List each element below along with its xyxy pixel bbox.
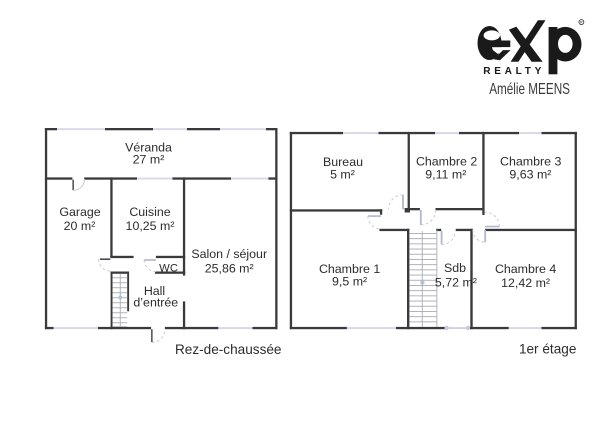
svg-text:WC: WC [159, 262, 178, 274]
svg-text:9,11 m²: 9,11 m² [425, 168, 466, 182]
svg-text:Garage: Garage [59, 205, 100, 219]
svg-text:Salon / séjour: Salon / séjour [191, 247, 267, 261]
svg-text:Sdb: Sdb [444, 261, 466, 275]
svg-text:Cuisine: Cuisine [129, 205, 170, 219]
svg-text:d’entrée: d’entrée [133, 296, 178, 310]
svg-text:5 m²: 5 m² [330, 167, 355, 181]
svg-text:10,25 m²: 10,25 m² [126, 219, 175, 233]
svg-text:20 m²: 20 m² [64, 219, 96, 233]
svg-text:9,63 m²: 9,63 m² [509, 167, 551, 181]
svg-text:5,72 m²: 5,72 m² [435, 275, 477, 289]
svg-text:9,5 m²: 9,5 m² [332, 275, 367, 289]
svg-text:Rez-de-chaussée: Rez-de-chaussée [175, 342, 282, 357]
svg-text:25,86 m²: 25,86 m² [205, 262, 254, 276]
svg-text:Chambre 2: Chambre 2 [416, 155, 477, 169]
svg-text:1er étage: 1er étage [519, 342, 576, 357]
svg-text:Chambre 4: Chambre 4 [495, 262, 556, 276]
svg-text:R: R [580, 21, 583, 25]
svg-text:12,42 m²: 12,42 m² [501, 276, 550, 290]
svg-text:27 m²: 27 m² [133, 153, 165, 167]
svg-text:Amélie MEENS: Amélie MEENS [489, 81, 570, 98]
